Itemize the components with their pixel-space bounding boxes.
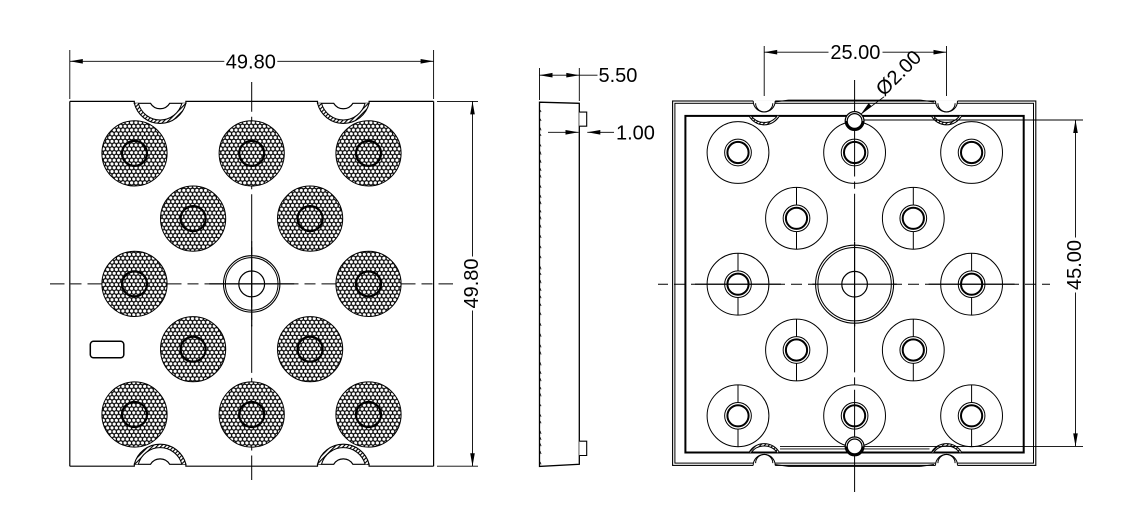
svg-text:5.50: 5.50 (599, 65, 638, 87)
svg-text:49.80: 49.80 (461, 258, 483, 308)
svg-text:49.80: 49.80 (226, 51, 276, 73)
svg-text:45.00: 45.00 (1064, 240, 1086, 290)
svg-text:25.00: 25.00 (830, 42, 880, 64)
svg-text:1.00: 1.00 (616, 122, 655, 144)
